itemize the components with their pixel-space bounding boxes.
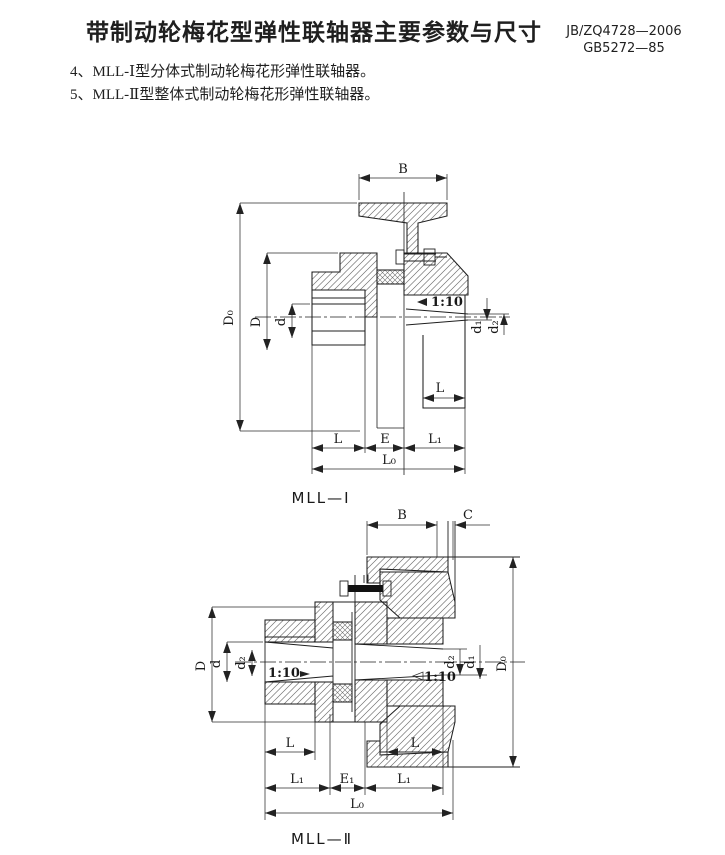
technical-drawing-canvas: B D₀ D d 1:10 d₁ d₂ L L E L₁ L₀ MLL—Ⅰ — [0, 0, 725, 855]
figure2-geometry — [235, 521, 525, 767]
fig2-label-L1-right: L₁ — [397, 772, 411, 787]
figure2-dimensions — [212, 521, 513, 820]
figure2-drawing: B C D d d₂ 1:10 1:10 d₂ d₁ D₀ L L L₁ E₁ … — [194, 508, 525, 848]
fig2-label-taper-right: 1:10 — [424, 670, 456, 685]
fig2-label-L1-left: L₁ — [290, 772, 304, 787]
document-page: 带制动轮梅花型弹性联轴器主要参数与尺寸 JB/ZQ4728—2006 GB527… — [0, 0, 725, 855]
fig2-label-D: D — [194, 661, 209, 671]
fig1-brake-wheel-rim — [359, 203, 447, 253]
fig2-label-d: d — [209, 660, 224, 668]
fig2-label-L-left: L — [286, 736, 295, 751]
fig1-elastomer-element — [377, 270, 404, 284]
fig1-label-D: D — [249, 317, 264, 327]
fig2-label-D0: D₀ — [495, 656, 510, 672]
fig1-right-flange — [404, 253, 468, 295]
fig2-taper-arrow-left-icon — [300, 671, 310, 677]
fig1-taper-arrow-icon — [417, 298, 427, 306]
fig2-left-flange-top — [315, 602, 333, 642]
fig1-label-E: E — [380, 432, 390, 447]
fig1-label-D0: D₀ — [222, 310, 237, 326]
fig2-label-C: C — [463, 508, 473, 523]
fig2-label-taper-left: 1:10 — [268, 666, 300, 681]
fig1-label-L: L — [334, 432, 343, 447]
fig2-label-d2-right: d₂ — [443, 655, 458, 669]
fig2-label-B: B — [397, 508, 407, 523]
fig2-right-hub-top — [387, 618, 443, 644]
fig1-left-flange — [312, 253, 377, 317]
fig1-label-d1: d₁ — [470, 320, 485, 334]
fig2-label-L-right: L — [411, 736, 420, 751]
fig1-label-taper: 1:10 — [431, 295, 463, 310]
figure1-drawing: B D₀ D d 1:10 d₁ d₂ L L E L₁ L₀ MLL—Ⅰ — [222, 162, 510, 507]
fig2-elastomer-top — [333, 622, 352, 640]
fig2-elastomer-bottom — [333, 684, 352, 702]
fig1-label-L-mid: L — [436, 381, 445, 396]
fig1-label-B: B — [398, 162, 408, 177]
fig1-label-L0: L₀ — [382, 453, 396, 468]
fig2-right-flange-bottom — [355, 680, 387, 722]
fig1-left-hub-bore-lines — [312, 298, 365, 331]
fig2-left-hub-bottom — [265, 682, 315, 704]
fig2-label-d2-left: d₂ — [234, 656, 249, 670]
fig2-label-E1: E₁ — [340, 772, 355, 787]
fig1-label-d2: d₂ — [487, 320, 502, 334]
figure1-caption: MLL—Ⅰ — [291, 489, 350, 507]
fig2-left-hub-top — [265, 620, 315, 642]
fig2-label-L0: L₀ — [350, 797, 364, 812]
fig2-label-d1: d₁ — [463, 655, 478, 669]
fig2-right-flange-top — [355, 602, 387, 644]
fig1-label-L1: L₁ — [428, 432, 442, 447]
fig1-label-d: d — [274, 318, 289, 326]
figure2-caption: MLL—Ⅱ — [291, 830, 353, 848]
